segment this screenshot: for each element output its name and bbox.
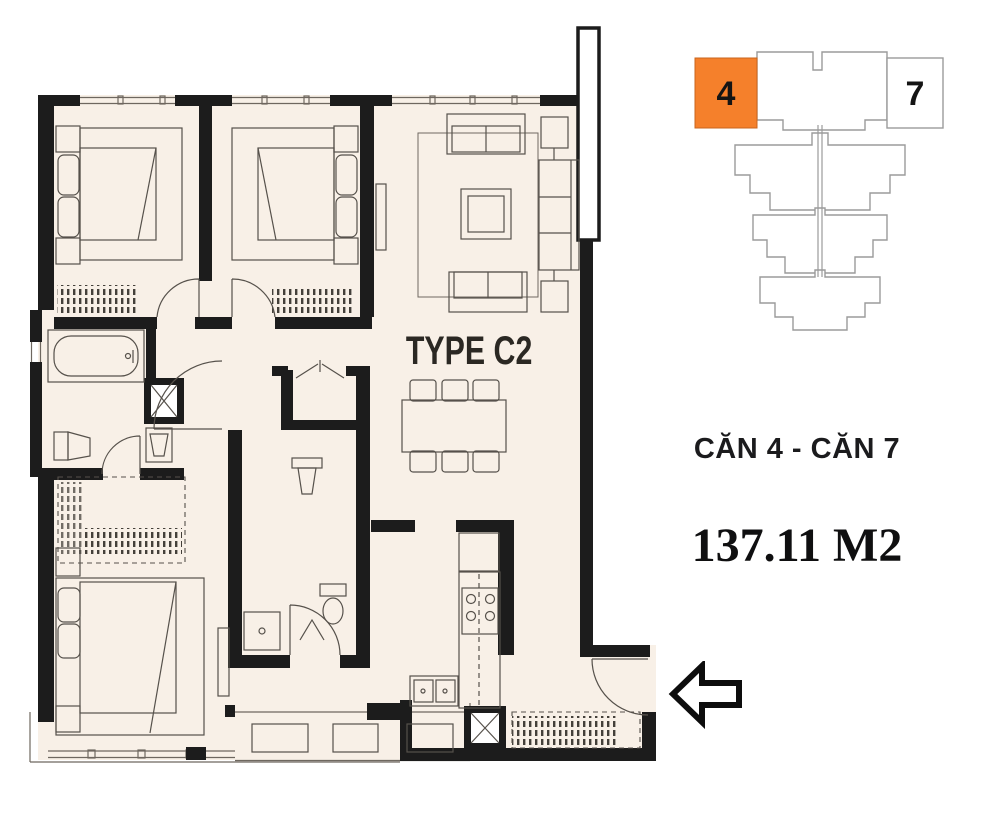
exterior-pillar — [578, 28, 599, 240]
keyplan-unit-4: 4 — [695, 58, 757, 128]
shoe-cabinet — [512, 716, 618, 746]
bedroom-1-rug — [57, 285, 137, 314]
entry-arrow-icon — [668, 661, 744, 729]
keyplan-unit-7: 7 — [887, 58, 943, 128]
units-label: CĂN 4 - CĂN 7 — [650, 433, 944, 466]
keyplan-unit-7-number: 7 — [906, 75, 925, 113]
floorplan-page: TYPE C2 4 7 CĂN 4 - CĂN 7 137.11 M2 — [0, 0, 1000, 835]
plan-type-label: TYPE C2 — [392, 329, 542, 373]
keyplan-footprint — [735, 52, 905, 330]
building-keyplan: 4 7 — [665, 25, 965, 345]
area-label: 137.11 M2 — [650, 518, 944, 573]
floorplan-drawing — [25, 15, 665, 785]
keyplan-unit-4-number: 4 — [717, 75, 736, 113]
bedroom-2-rug — [272, 287, 354, 315]
